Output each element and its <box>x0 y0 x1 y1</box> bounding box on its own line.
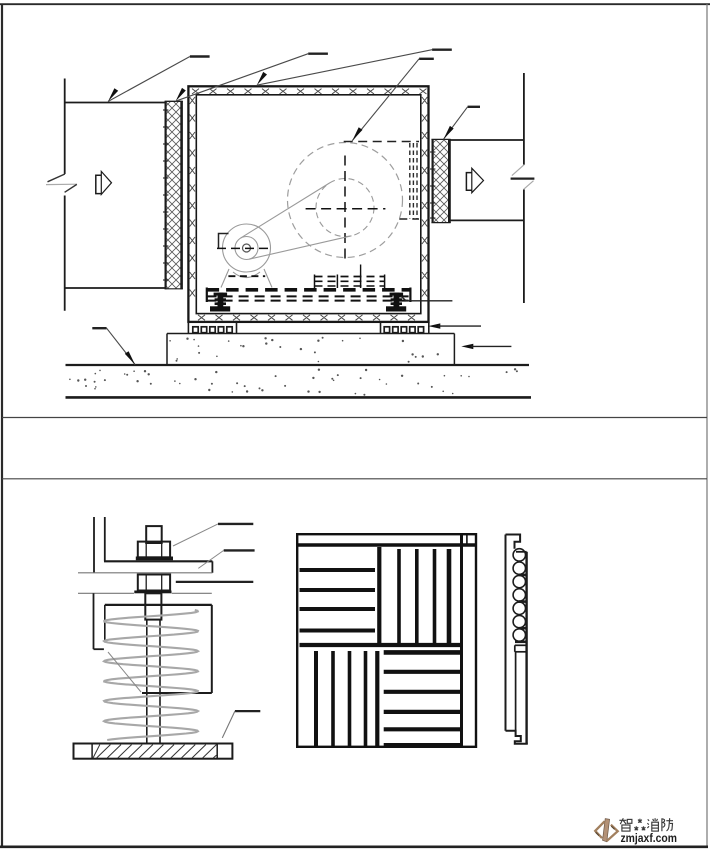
svg-text:zmjaxf.com: zmjaxf.com <box>621 831 678 845</box>
